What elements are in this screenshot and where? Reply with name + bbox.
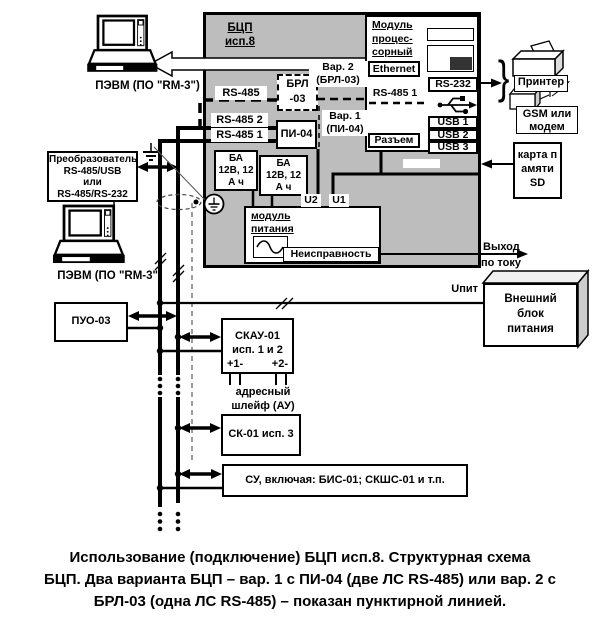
functional-ground-icon — [205, 195, 224, 214]
usb2-port: USB 2 — [428, 129, 478, 141]
battery-1-box: БА 12В, 12 А ч — [214, 150, 258, 191]
razem-connector: Разъем — [368, 133, 420, 148]
variant-2-label: Вар. 2 (БРЛ-03) — [309, 61, 367, 87]
junction-dot — [175, 334, 181, 340]
external-psu-box: Внешний блок питания — [483, 283, 578, 347]
usb1-port: USB 1 — [428, 116, 478, 129]
power-module-title: модуль питания — [251, 210, 294, 236]
caption: Использование (подключение) БЦП исп.8. С… — [10, 547, 590, 613]
rs232-port: RS-232 — [428, 77, 478, 92]
arrowhead — [210, 332, 221, 342]
rs485-1-dashed-underline — [367, 99, 437, 107]
pi04-box: ПИ-04 — [276, 120, 317, 149]
printer-label: Принтер — [514, 75, 568, 92]
sd-slot — [403, 159, 440, 168]
su-box: СУ, включая: БИС-01; СКШС-01 и т.п. — [222, 464, 468, 497]
bcp-title: БЦП исп.8 — [213, 21, 267, 49]
fault-label: Неисправность — [283, 247, 379, 262]
junction-dot — [175, 425, 181, 431]
psu-side-face — [578, 271, 588, 347]
variant-1-label: Вар. 1 (ПИ-04) — [322, 110, 368, 136]
display-large — [427, 45, 474, 72]
printer-group-brace: } — [498, 54, 510, 100]
junction-dot — [157, 300, 163, 306]
printer-icon — [513, 41, 563, 76]
u2-label: U2 — [301, 194, 321, 207]
arrowhead — [211, 469, 222, 479]
processor-module-title: Модуль процес- сорный — [372, 19, 413, 60]
arrowhead — [210, 423, 221, 433]
computer-icon — [53, 206, 125, 263]
ground-icon — [143, 143, 159, 160]
rs485-1-label: RS-485 1 — [211, 128, 268, 142]
computer-icon — [87, 16, 157, 72]
usb-trident-icon — [437, 93, 481, 117]
current-output-label-1: Выход — [483, 240, 529, 254]
arrowhead — [137, 162, 148, 172]
pc-top-label: ПЭВМ (ПО "RM-3") — [90, 79, 205, 93]
arrowhead — [481, 160, 492, 169]
u1-label: U1 — [329, 194, 349, 207]
converter-box: Преобразователь RS-485/USB или RS-485/RS… — [47, 151, 138, 202]
junction-dot — [157, 485, 163, 491]
usb3-port: USB 3 — [428, 141, 478, 154]
psu-top-face — [483, 271, 588, 283]
power-module-box: модуль питания Неисправность — [244, 206, 381, 264]
battery-2-box: БА 12В, 12 А ч — [259, 155, 308, 196]
processor-module: Модуль процес- сорный Ethernet RS-232 RS… — [365, 15, 479, 152]
junction-dot — [157, 325, 163, 331]
display-dark-area — [450, 57, 472, 70]
skau-terminals: +1-+2- — [227, 357, 288, 371]
gsm-modem-label: GSM или модем — [516, 106, 578, 134]
junction-dot — [157, 348, 163, 354]
diagram-page: БЦП исп.8 Модуль процес- сорный Ethernet… — [0, 0, 600, 626]
arrowhead — [166, 311, 177, 321]
skau-box: СКАУ-01 исп. 1 и 2 +1-+2- — [221, 318, 294, 374]
rs485-2-label: RS-485 2 — [211, 113, 268, 127]
sd-card-box: карта п амяти SD — [513, 142, 562, 199]
address-loop-label: адресный шлейф (АУ) — [226, 385, 300, 413]
rs485-top-label: RS-485 — [215, 86, 267, 100]
junction-dot — [194, 200, 199, 205]
junction-dot — [175, 471, 181, 477]
arrowhead — [128, 311, 139, 321]
pc-bottom-label: ПЭВМ (ПО "RM-3") — [52, 269, 167, 283]
sk01-box: СК-01 исп. 3 — [221, 414, 301, 456]
current-output-label-2: по току — [481, 256, 529, 270]
display-small — [427, 28, 474, 41]
puo-03-box: ПУО-03 — [54, 302, 128, 342]
upit-label: Uпит — [438, 282, 478, 296]
ethernet-port: Ethernet — [368, 61, 420, 77]
